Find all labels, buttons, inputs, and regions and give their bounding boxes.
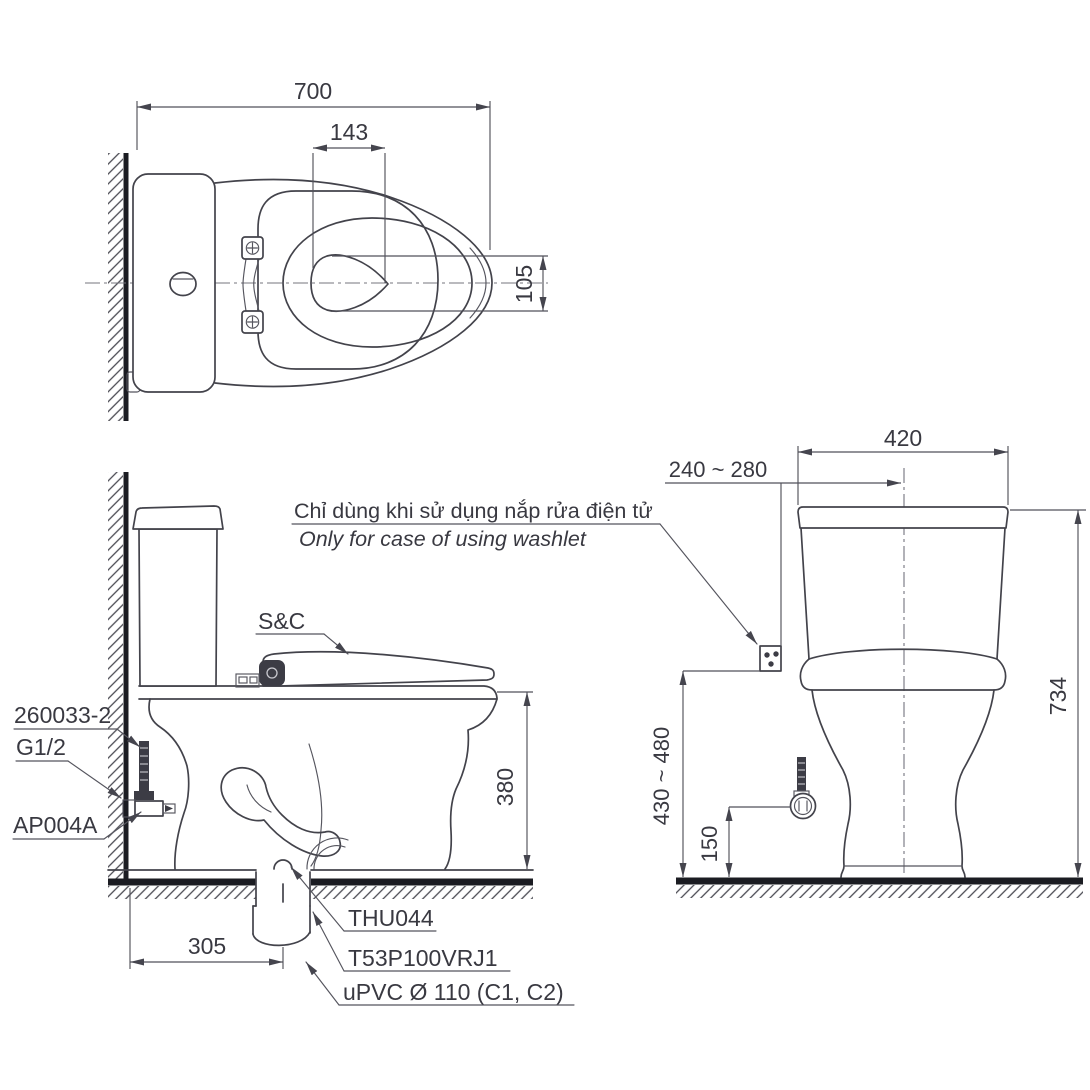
washlet-note: Chỉ dùng khi sử dụng nắp rửa điện tử Onl… [292,498,757,644]
leader-line [313,912,344,971]
leader-line [306,962,339,1005]
socket-dot [764,652,769,657]
dim-water-width: 143 [313,119,385,283]
washlet-socket-box [760,646,781,671]
tank-side-right [997,528,1005,659]
socket-outline [760,646,781,671]
note-leader-line [660,524,757,644]
dim-outlet-offset: 305 [130,888,283,969]
drain-pipe [253,872,310,945]
dim-tank-width: 420 [798,425,1008,505]
seat-mount-tab-left [239,677,247,683]
angle-valve-assembly [123,741,175,817]
dim-420-label: 420 [884,425,922,451]
pipe-bottom-arc [253,932,310,945]
floor-hatch-side-view [676,885,1083,898]
label-washlet-seat: S&C [256,608,348,654]
washlet-seat-code: S&C [258,608,305,634]
cistern-tank-plan [133,174,215,392]
valve-riser-side [797,757,806,791]
dim-240-280-label: 240 ~ 280 [669,457,767,482]
tank-lid-front-view [133,506,223,529]
bowl-deck-top [139,686,497,698]
top-view: 700 143 105 [85,78,548,421]
wall-hatch-front-view [108,472,123,884]
socket-dot [768,661,773,666]
bowl-rim-top-arc [809,649,997,659]
dim-143-label: 143 [330,119,368,145]
tank-lid-side-view [798,507,1008,528]
supply-hose-code: 260033-2 [14,702,111,728]
socket-dot [773,651,778,656]
seat-hinge-plan [242,237,263,333]
bowl-back-profile [149,699,189,869]
floor-hatch-right [311,886,533,899]
toilet-dimension-drawing: 700 143 105 [0,0,1090,1090]
front-view: 380 305 260033-2 G1/2 AP004A S&C [13,472,574,1005]
drain-pipe-spec: uPVC Ø 110 (C1, C2) [343,979,564,1005]
dim-supply-offset: 240 ~ 280 [665,457,901,646]
pedestal-left-profile [812,690,850,877]
technical-drawing-page: 700 143 105 [0,0,1090,1090]
side-view: 420 240 ~ 280 734 430 ~ 480 150 [649,425,1086,898]
dim-430-480-label: 430 ~ 480 [649,727,674,825]
dim-overall-height: 734 [1010,510,1086,877]
angle-valve-code: AP004A [13,812,98,838]
stop-valve-side-view [791,757,816,819]
dim-380-label: 380 [492,768,518,806]
trapway-curve [221,768,340,856]
dim-305-label: 305 [188,933,226,959]
trapway-inner-hint [247,785,271,812]
dim-valve-height: 150 [697,807,791,877]
thread-size-code: G1/2 [16,734,66,760]
tank-body-front-view [139,529,217,686]
valve-flow-arrow [165,805,173,812]
outlet-hole-bump [274,860,292,869]
outlet-flange-code: THU044 [348,905,434,931]
dim-rim-height: 380 [492,692,533,869]
note-english: Only for case of using washlet [299,527,587,551]
model-code-text: T53P100VRJ1 [348,945,498,971]
seat-mount-tab-right [250,677,257,683]
seat-hinge-front-view [259,660,285,686]
note-vietnamese: Chỉ dùng khi sử dụng nắp rửa điện tử [294,498,653,523]
valve-nut [134,791,154,800]
hinge-bar-left [243,259,246,311]
pedestal-right-profile [956,690,994,877]
dim-734-label: 734 [1045,677,1071,716]
washlet-seat-profile [263,652,494,686]
wall-hatch-top-view [108,153,123,421]
bowl-front-profile [445,699,497,869]
dim-105-label: 105 [511,265,537,303]
label-thread-size: G1/2 [16,734,121,798]
dim-150-label: 150 [697,826,722,863]
dim-700-label: 700 [294,78,332,104]
tank-side-left [801,528,809,659]
bowl-rim-band [800,659,1005,690]
